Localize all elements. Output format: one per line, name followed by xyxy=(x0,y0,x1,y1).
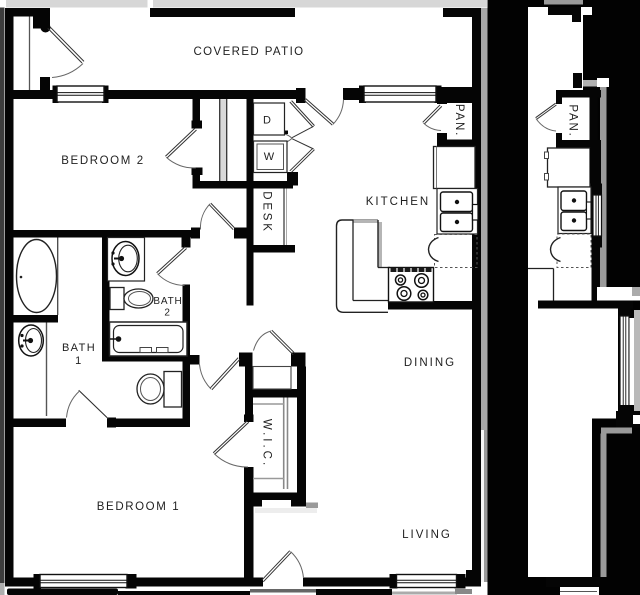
svg-text:BATH: BATH xyxy=(153,296,182,307)
svg-text:W: W xyxy=(264,151,275,163)
svg-text:DINING: DINING xyxy=(404,357,456,369)
svg-text:PAN.: PAN. xyxy=(567,104,579,137)
svg-text:W.I.C.: W.I.C. xyxy=(261,419,273,468)
svg-text:1: 1 xyxy=(75,355,83,367)
svg-text:2: 2 xyxy=(164,308,171,319)
svg-text:COVERED PATIO: COVERED PATIO xyxy=(193,46,304,58)
svg-text:D: D xyxy=(263,115,271,127)
svg-text:BEDROOM 1: BEDROOM 1 xyxy=(97,501,180,513)
svg-text:DESK: DESK xyxy=(261,191,273,234)
svg-text:BATH: BATH xyxy=(62,342,96,354)
svg-text:PAN.: PAN. xyxy=(453,104,465,137)
svg-text:LIVING: LIVING xyxy=(402,529,452,541)
svg-text:BEDROOM 2: BEDROOM 2 xyxy=(61,155,144,167)
svg-text:KITCHEN: KITCHEN xyxy=(366,196,430,208)
